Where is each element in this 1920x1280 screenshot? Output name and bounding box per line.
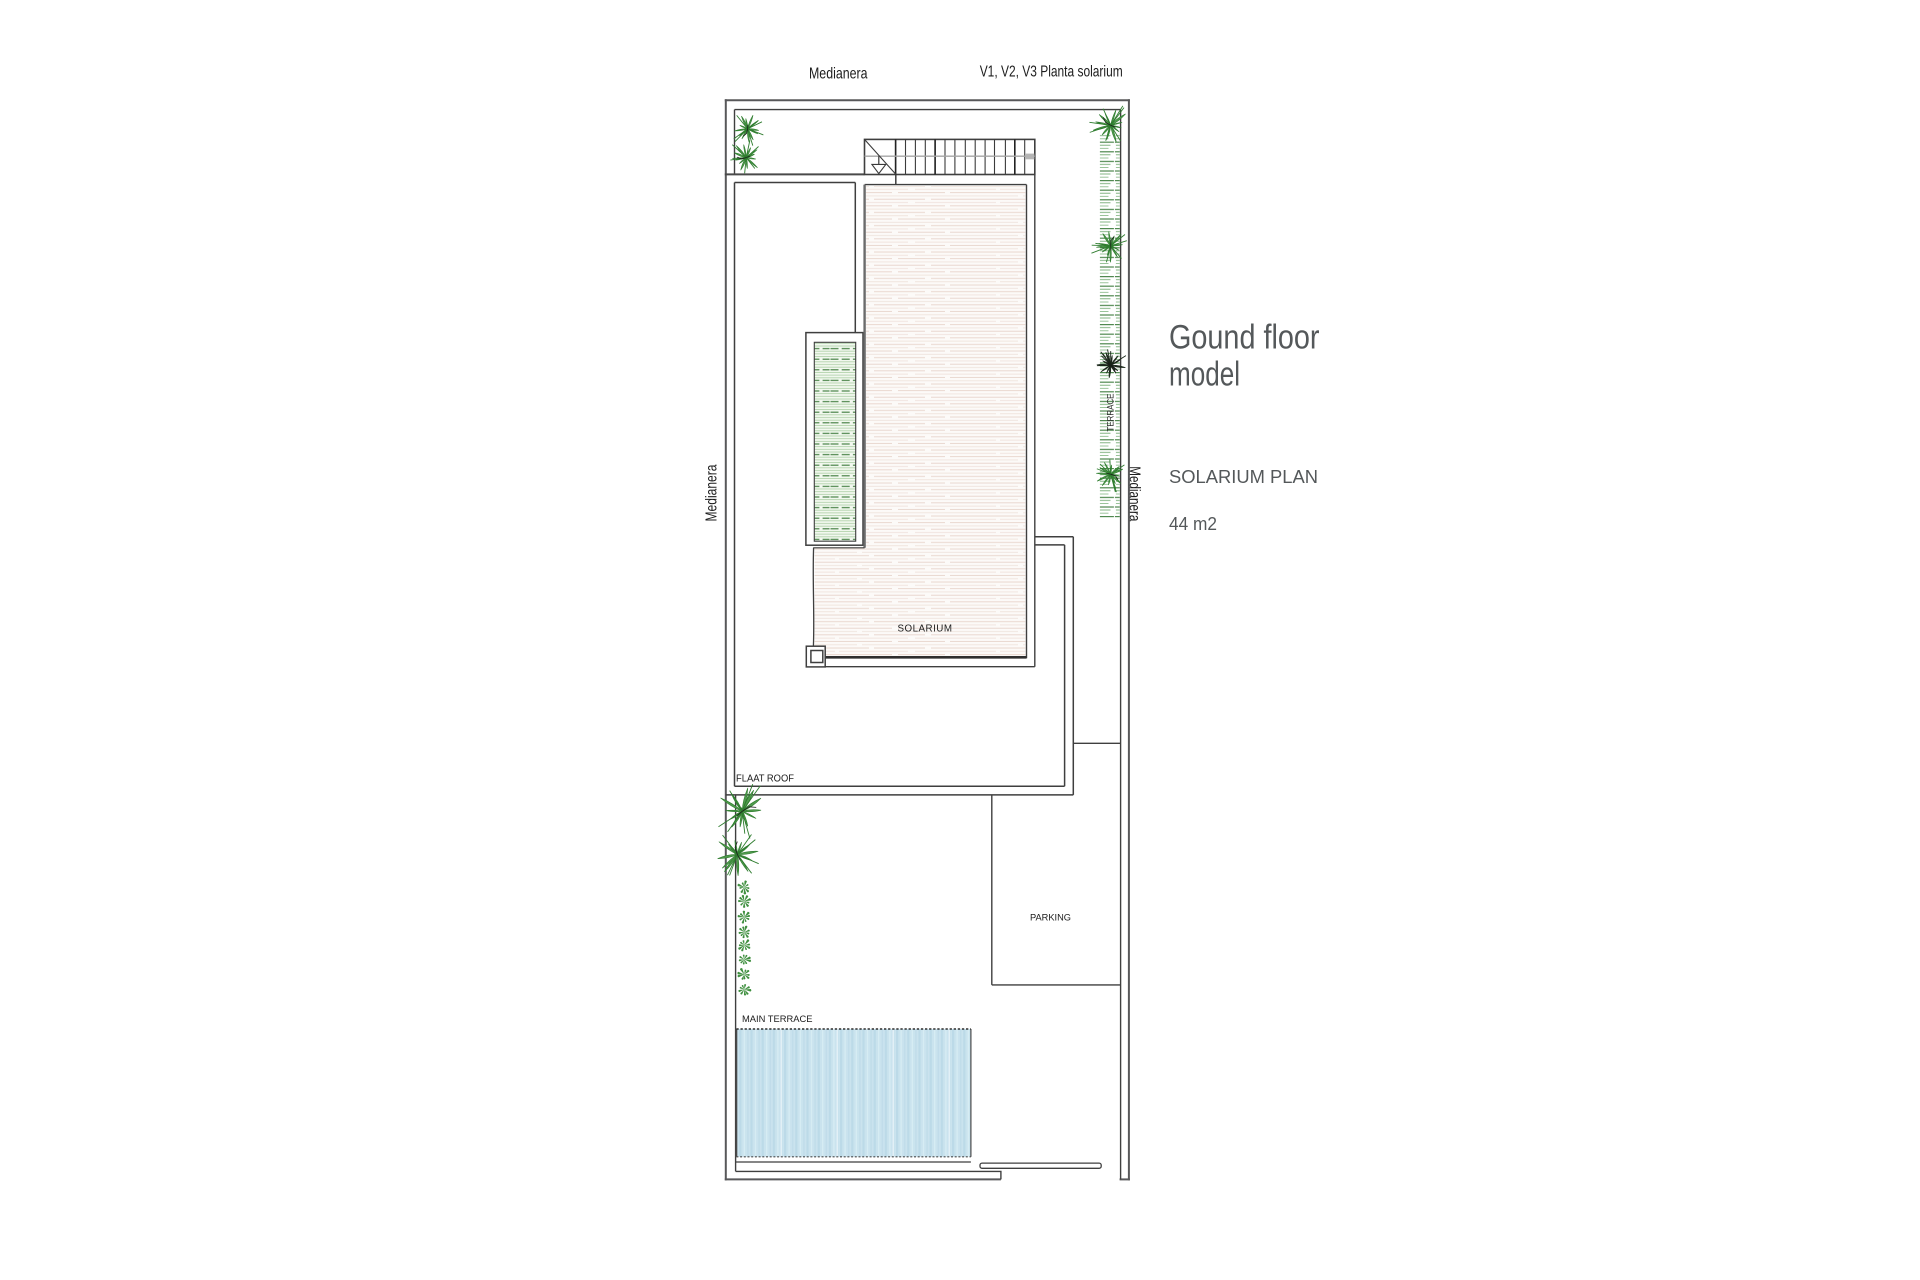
svg-text:V1, V2, V3 Planta solarium: V1, V2, V3 Planta solarium: [980, 64, 1123, 81]
svg-text:PARKING: PARKING: [1030, 913, 1071, 924]
svg-text:FLAAT ROOF: FLAAT ROOF: [736, 773, 794, 785]
svg-text:SOLARIUM: SOLARIUM: [898, 624, 953, 635]
svg-text:Medianera: Medianera: [704, 464, 721, 521]
svg-text:Gound floor: Gound floor: [1169, 319, 1320, 357]
svg-text:MAIN TERRACE: MAIN TERRACE: [742, 1013, 813, 1024]
svg-text:model: model: [1169, 356, 1240, 394]
svg-text:Medianera: Medianera: [809, 66, 868, 83]
svg-text:44 m2: 44 m2: [1169, 513, 1217, 534]
svg-text:TERRACE: TERRACE: [1106, 394, 1117, 432]
svg-text:SOLARIUM PLAN: SOLARIUM PLAN: [1169, 466, 1318, 487]
